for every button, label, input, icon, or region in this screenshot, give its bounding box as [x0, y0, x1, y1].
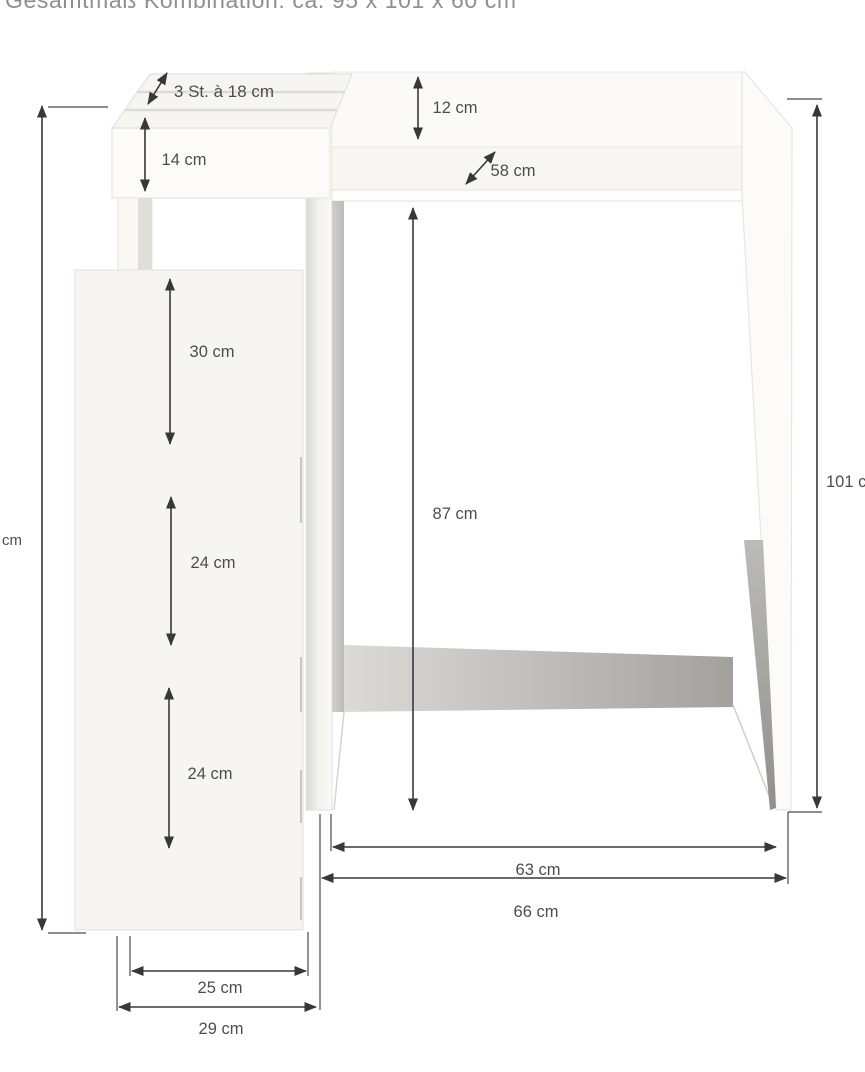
page-title: Gesamtmaß Kombination: ca. 95 x 101 x 60… — [5, 0, 517, 14]
dim-label-side-unit-width: 25 cm — [198, 979, 243, 997]
dim-label-left-height: cm — [2, 532, 22, 549]
desk-top-front-edge — [332, 190, 745, 201]
dim-label-box-height: 14 cm — [162, 151, 207, 169]
desk-left-leg-inner-face — [332, 201, 344, 712]
desk-unit — [306, 72, 792, 810]
side-unit-front-leg-shadow — [138, 198, 152, 270]
dim-label-shelf-gap-2: 24 cm — [191, 554, 236, 572]
dim-label-clearance-height: 87 cm — [433, 505, 478, 523]
dim-label-side-unit-outer-width: 29 cm — [199, 1020, 244, 1038]
side-unit-panel — [75, 270, 303, 930]
dim-label-riser-height: 12 cm — [433, 99, 478, 117]
desk-top-surface — [332, 147, 745, 190]
desk-back-stretcher — [344, 645, 733, 712]
dim-label-outer-width: 66 cm — [514, 903, 559, 921]
desk-back-panel — [332, 72, 742, 147]
dim-label-top-depth: 58 cm — [491, 162, 536, 180]
dim-label-total-height: 101 cm — [826, 473, 865, 491]
floor-edge-left — [334, 712, 344, 810]
diagram-canvas: Gesamtmaß Kombination: ca. 95 x 101 x 60… — [0, 0, 865, 1072]
dim-label-shelf-gap-3: 24 cm — [188, 765, 233, 783]
dim-label-shelf-gap-1: 30 cm — [190, 343, 235, 361]
dim-label-inner-width: 63 cm — [516, 861, 561, 879]
dim-label-compartments: 3 St. à 18 cm — [174, 82, 274, 101]
furniture-line-drawing: cm 3 St. à 18 cm 14 cm 12 cm 58 cm 30 cm… — [0, 0, 865, 1072]
